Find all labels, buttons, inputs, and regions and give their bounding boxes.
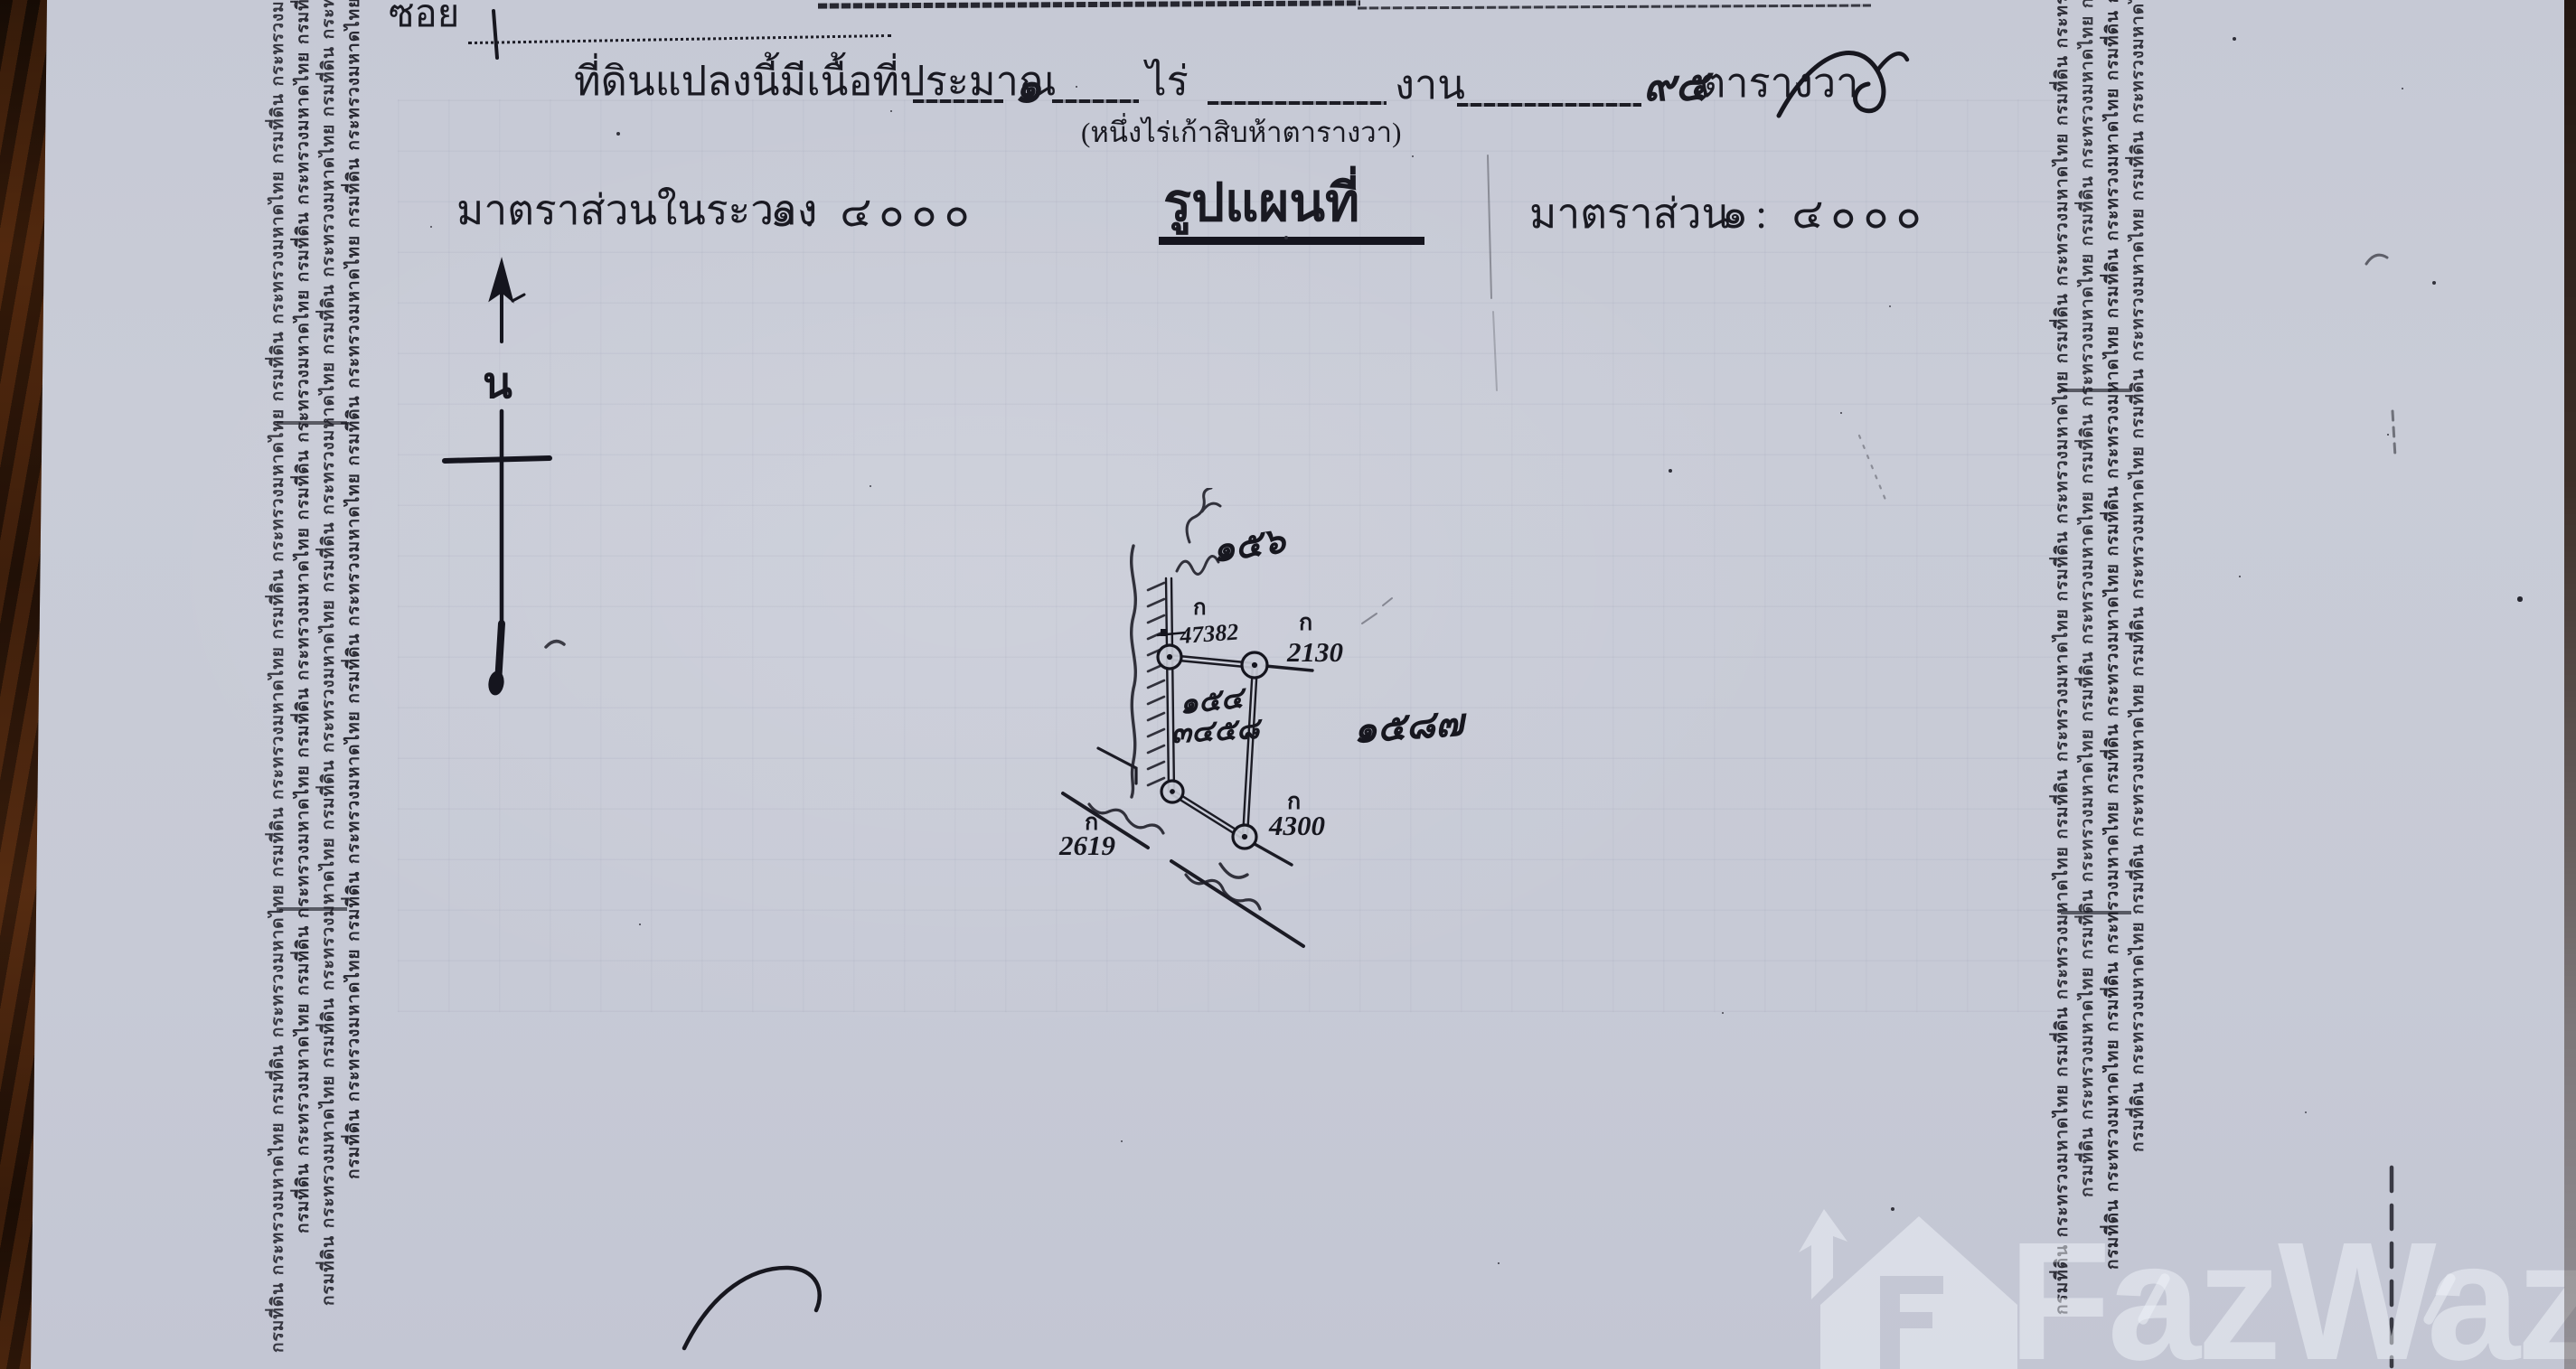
watermark-text: FazWaz	[2008, 1218, 2576, 1369]
house-shape	[1820, 1216, 2017, 1369]
watermark-house-icon	[0, 0, 2576, 1369]
paper-shadow-edge	[2564, 0, 2576, 1369]
arrow-shape	[1799, 1209, 1847, 1299]
scanned-land-deed-sheet: กรมที่ดิน กระทรวงมหาดไทย กรมที่ดิน กระทร…	[0, 0, 2576, 1369]
